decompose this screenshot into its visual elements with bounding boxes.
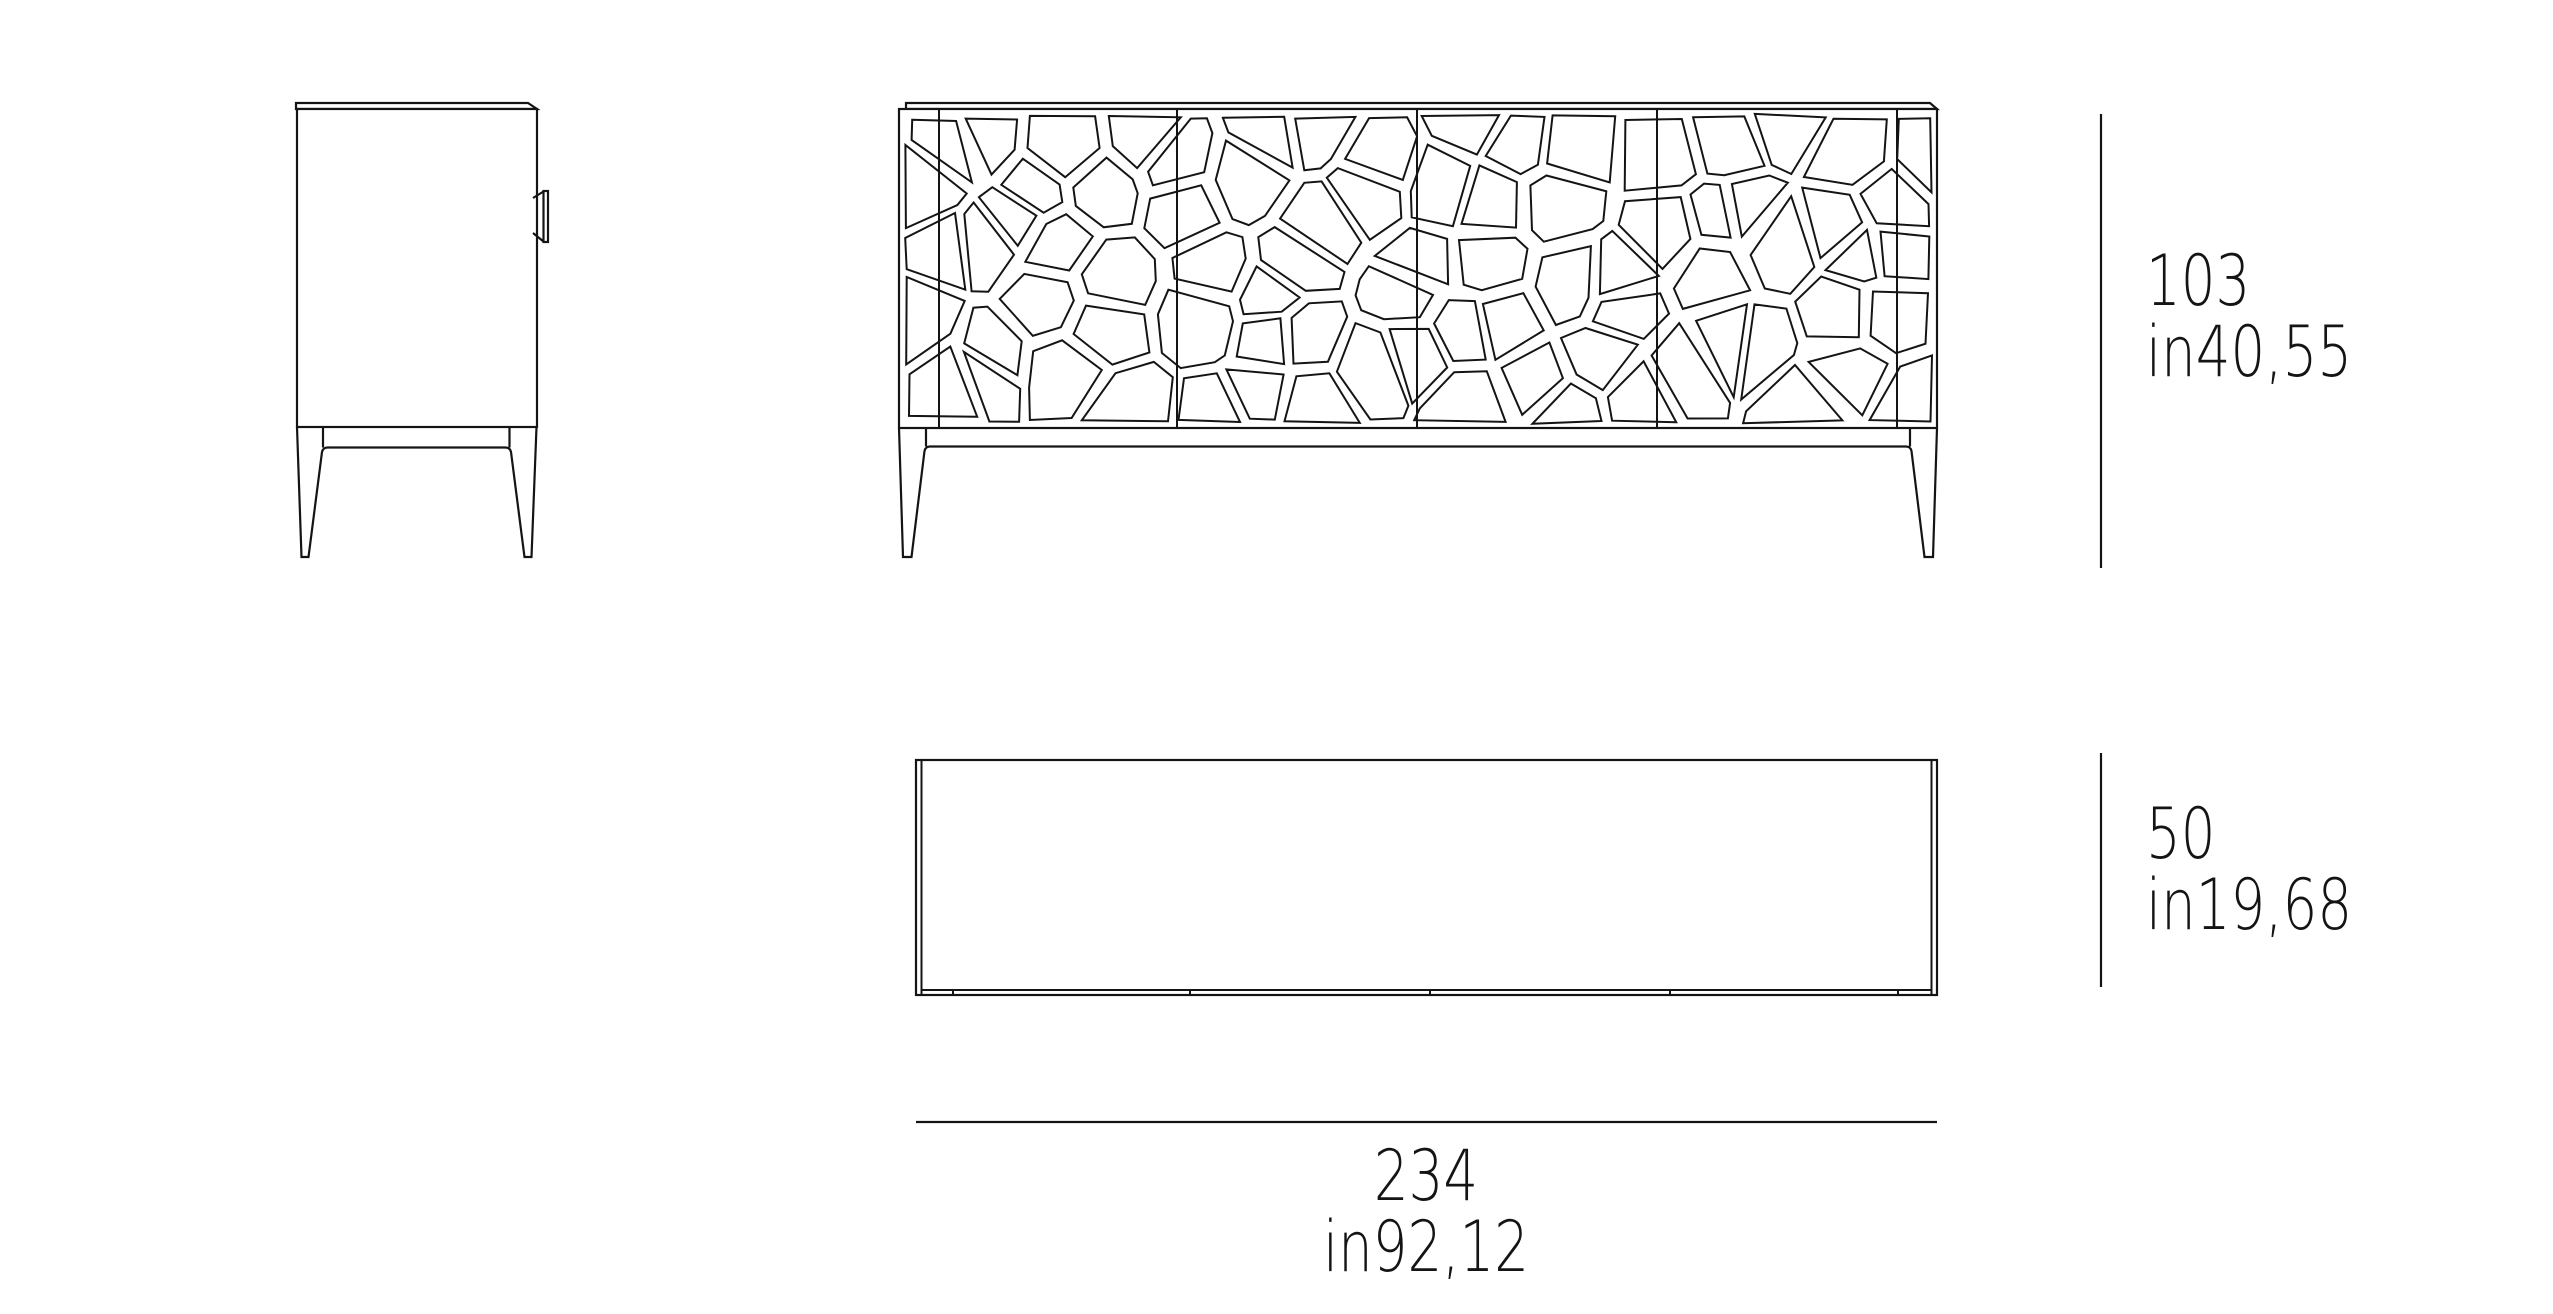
- plan-view: [916, 760, 1937, 995]
- height-value-inches: in40,55: [2146, 317, 2352, 388]
- width-dimension-label: 234 in92,12: [1270, 1141, 1582, 1283]
- front-view: [899, 103, 1937, 557]
- height-dimension-label: 103 in40,55: [2146, 246, 2352, 388]
- width-value-inches: in92,12: [1270, 1212, 1582, 1283]
- depth-value-inches: in19,68: [2146, 870, 2352, 941]
- technical-drawing-canvas: 103 in40,55 50 in19,68 234 in92,12: [0, 0, 2553, 1314]
- width-value-cm: 234: [1270, 1141, 1582, 1212]
- side-view-base: [297, 427, 537, 557]
- side-view-body: [297, 109, 537, 427]
- front-view-base: [899, 428, 1937, 557]
- side-view: [296, 103, 548, 557]
- depth-value-cm: 50: [2146, 799, 2352, 870]
- technical-drawing: [0, 0, 2553, 1314]
- height-value-cm: 103: [2146, 246, 2352, 317]
- plan-view-outline: [916, 760, 1937, 995]
- depth-dimension-label: 50 in19,68: [2146, 799, 2352, 941]
